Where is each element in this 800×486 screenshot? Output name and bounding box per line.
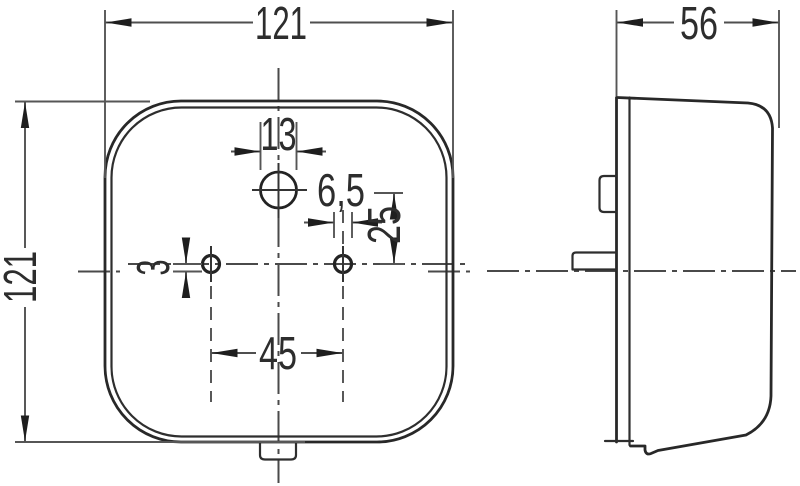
side-upper-tab xyxy=(600,176,617,212)
dim-hole-spacing-label: 45 xyxy=(259,327,297,379)
side-housing-outline xyxy=(617,98,773,455)
side-view xyxy=(573,98,773,455)
dim-side-depth: 56 xyxy=(617,0,780,128)
dim-front-width-label: 121 xyxy=(255,0,307,49)
dim-hole-line-offset: 3 xyxy=(127,238,202,298)
dim-side-depth-label: 56 xyxy=(680,0,718,49)
side-center-stud xyxy=(573,253,617,270)
dim-front-height-label: 121 xyxy=(0,251,46,303)
dim-top-hole: 13 xyxy=(231,108,326,170)
dim-hole-spacing: 45 xyxy=(212,327,343,379)
technical-drawing: 121 56 121 13 6,5 25 xyxy=(0,0,800,486)
dim-top-hole-label: 13 xyxy=(261,108,297,160)
dim-hole-line-offset-label: 3 xyxy=(127,260,179,276)
dim-hole-line-to-top-hole-label: 25 xyxy=(358,206,410,244)
technical-drawing-page: 121 56 121 13 6,5 25 xyxy=(0,0,800,486)
dim-hole-line-to-top-hole: 25 xyxy=(358,193,410,264)
